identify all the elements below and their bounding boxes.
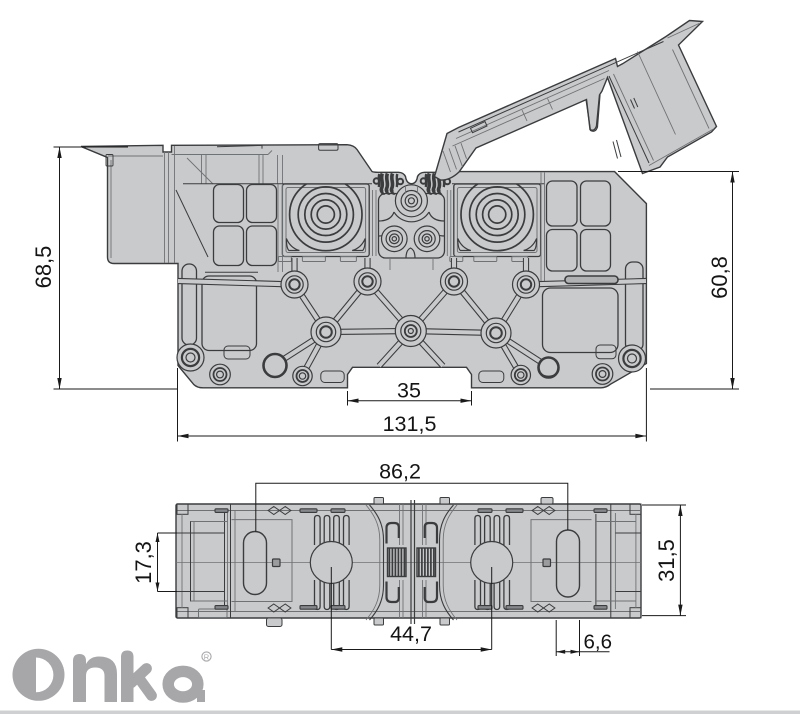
svg-text:60,8: 60,8 — [707, 256, 732, 299]
svg-text:131,5: 131,5 — [383, 412, 437, 436]
svg-text:31,5: 31,5 — [654, 539, 679, 582]
svg-text:86,2: 86,2 — [379, 460, 421, 484]
svg-text:6,6: 6,6 — [584, 631, 613, 654]
svg-text:17,3: 17,3 — [131, 541, 156, 584]
svg-text:68,5: 68,5 — [31, 246, 56, 289]
svg-text:44,7: 44,7 — [390, 622, 432, 646]
svg-text:R: R — [204, 653, 210, 662]
svg-text:35: 35 — [397, 379, 421, 403]
